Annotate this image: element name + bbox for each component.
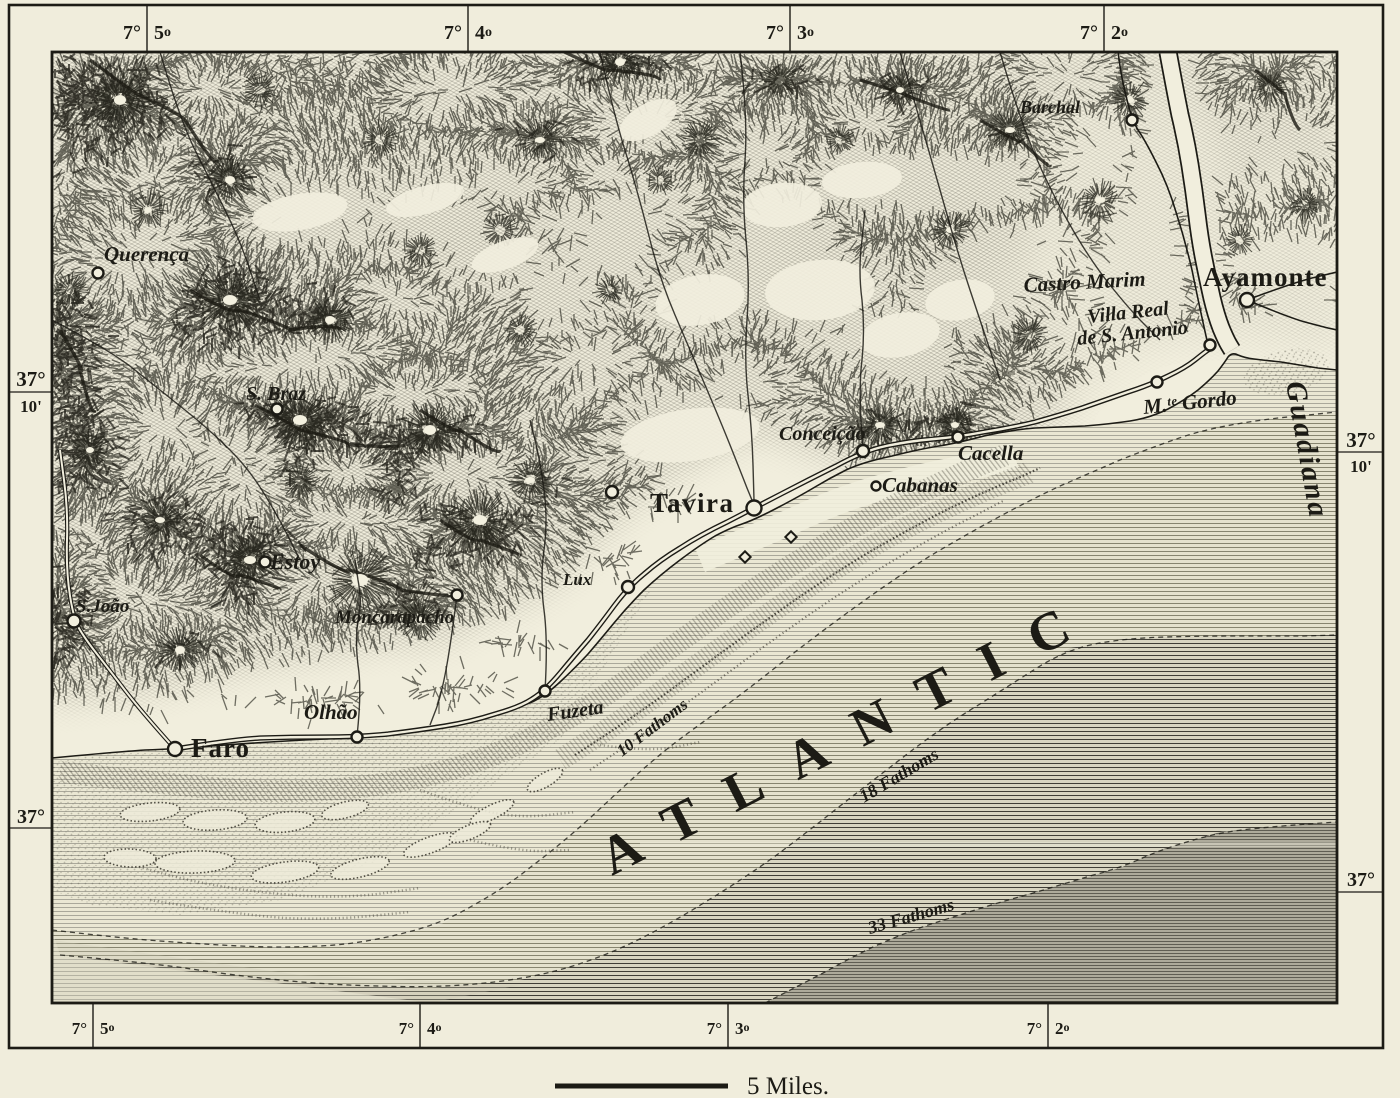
svg-text:7°: 7° xyxy=(444,22,462,44)
svg-text:7°: 7° xyxy=(1080,22,1098,44)
svg-text:7°: 7° xyxy=(72,1019,87,1038)
svg-text:7°: 7° xyxy=(399,1019,414,1038)
svg-text:Cacella: Cacella xyxy=(958,441,1023,465)
svg-text:7°: 7° xyxy=(123,22,141,44)
svg-text:37°: 37° xyxy=(1346,428,1375,452)
svg-text:Querença: Querença xyxy=(104,242,189,266)
svg-text:Barchal: Barchal xyxy=(1019,97,1080,117)
svg-text:Conceição: Conceição xyxy=(779,423,866,445)
svg-text:Cabanas: Cabanas xyxy=(882,473,958,497)
svg-text:Ayamonte: Ayamonte xyxy=(1203,262,1327,292)
svg-text:10': 10' xyxy=(20,397,42,416)
svg-text:37°: 37° xyxy=(16,367,45,391)
svg-text:Moncarapacho: Moncarapacho xyxy=(334,607,454,628)
svg-text:37°: 37° xyxy=(1347,869,1375,891)
svg-text:7°: 7° xyxy=(1027,1019,1042,1038)
svg-text:S. Braz: S. Braz xyxy=(246,383,306,405)
svg-text:7°: 7° xyxy=(707,1019,722,1038)
svg-text:Tavira: Tavira xyxy=(650,488,735,518)
svg-text:10': 10' xyxy=(1350,457,1372,476)
svg-text:7°: 7° xyxy=(766,22,784,44)
svg-text:Lux: Lux xyxy=(562,570,592,589)
svg-text:Estoy: Estoy xyxy=(269,549,320,574)
svg-text:Olhão: Olhão xyxy=(304,700,358,724)
svg-text:37°: 37° xyxy=(17,806,45,828)
svg-text:Faro: Faro xyxy=(191,733,250,763)
svg-text:5 Miles.: 5 Miles. xyxy=(747,1073,829,1098)
svg-text:S.João: S.João xyxy=(76,596,129,617)
